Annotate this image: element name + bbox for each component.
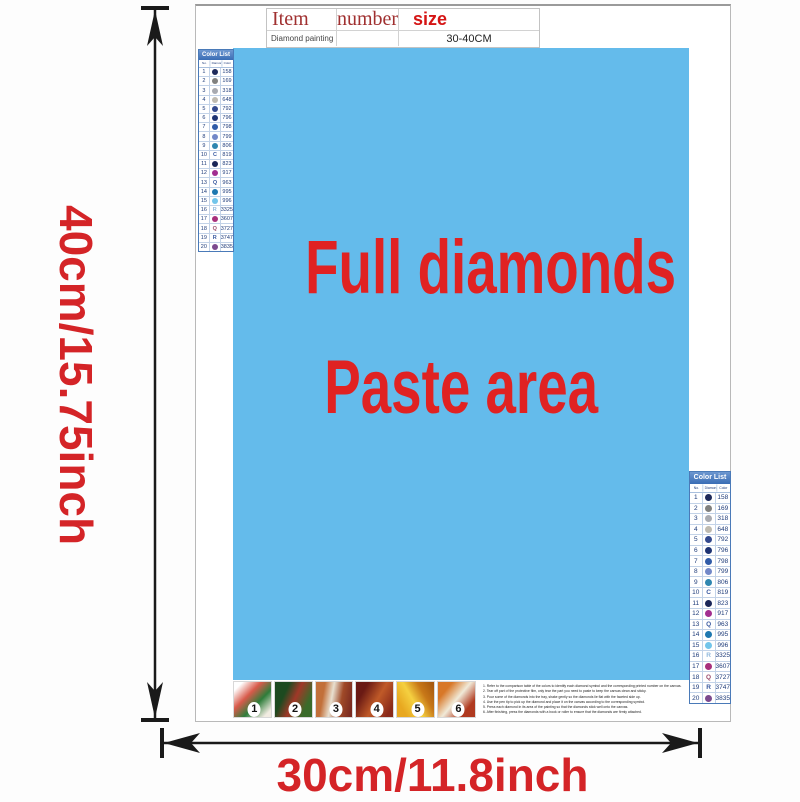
color-number: 5 (690, 535, 703, 545)
diamond-color-dot-icon (210, 123, 221, 131)
diamond-color-dot-icon (210, 68, 221, 76)
color-code: 798 (221, 124, 233, 130)
color-number: 8 (690, 567, 703, 577)
color-code: 318 (716, 515, 730, 522)
color-number: 17 (690, 662, 703, 672)
color-list-row: 7798 (690, 556, 730, 567)
color-list-row: 1158 (690, 493, 730, 504)
color-code: 3727 (716, 674, 730, 681)
color-number: 4 (690, 525, 703, 535)
color-number: 2 (199, 77, 210, 85)
diamond-color-dot-icon (703, 630, 716, 640)
diamond-color-dot-icon (703, 567, 716, 577)
color-list-row: 10C819 (199, 151, 233, 160)
color-list-row: 6796 (199, 114, 233, 123)
color-number: 7 (690, 556, 703, 566)
color-list-row: 9806 (199, 142, 233, 151)
color-dot (212, 189, 218, 195)
color-dot (705, 536, 712, 543)
color-list-row: 11823 (199, 160, 233, 169)
color-list-row: 16R3325 (690, 651, 730, 662)
color-code: 917 (716, 610, 730, 617)
color-number: 1 (199, 68, 210, 76)
color-number: 8 (199, 132, 210, 140)
diamond-color-dot-icon (703, 514, 716, 524)
color-dot (705, 695, 712, 702)
item-table: Item number size Diamond painting 30-40C… (266, 8, 540, 48)
color-code: 799 (221, 134, 233, 140)
color-list-row: 13Q963 (199, 178, 233, 187)
color-dot (705, 568, 712, 575)
diamond-color-dot-icon (210, 160, 221, 168)
color-list-row: 8799 (199, 132, 233, 141)
color-list-row: 14995 (199, 188, 233, 197)
color-dot (705, 515, 712, 522)
color-number: 2 (690, 504, 703, 514)
color-dot (212, 124, 218, 130)
item-table-value-number (337, 31, 399, 46)
color-code: 806 (221, 143, 233, 149)
color-dot (705, 526, 712, 533)
color-list-column-label: Color (223, 60, 233, 66)
color-list-column-label: No. (200, 60, 211, 66)
color-number: 13 (199, 178, 210, 186)
diamond-color-dot-icon (703, 693, 716, 703)
width-dimension-label: 30cm/11.8inch (155, 748, 710, 802)
step-thumbnail-2: 2 (274, 681, 313, 718)
diamond-color-dot-icon (703, 493, 716, 503)
color-code: 648 (716, 526, 730, 533)
color-list-row: 19R3747 (199, 234, 233, 243)
color-number: 19 (199, 234, 210, 242)
color-list-column-label: Diamond (211, 60, 222, 66)
color-number: 10 (690, 588, 703, 598)
color-dot (705, 642, 712, 649)
diamond-color-dot-icon (210, 243, 221, 251)
color-list-row: 203835 (690, 693, 730, 703)
color-dot (212, 161, 218, 167)
color-number: 15 (199, 197, 210, 205)
color-number: 7 (199, 123, 210, 131)
step-number-badge: 5 (411, 702, 424, 717)
color-dot (212, 143, 218, 149)
color-list-row: 10C819 (690, 588, 730, 599)
color-list-row: 11823 (690, 598, 730, 609)
item-table-header-number: number (337, 9, 399, 31)
step-thumbnail-4: 4 (355, 681, 394, 718)
color-list-row: 16R3325 (199, 206, 233, 215)
color-number: 6 (690, 546, 703, 556)
color-list-row: 2169 (199, 77, 233, 86)
step-number-badge: 3 (329, 702, 342, 717)
color-number: 14 (199, 188, 210, 196)
color-number: 18 (199, 224, 210, 232)
color-list-row: 5792 (690, 535, 730, 546)
diamond-color-dot-icon (210, 188, 221, 196)
diamond-color-dot-icon (210, 96, 221, 104)
step-thumbnail-1: 1 (233, 681, 272, 718)
item-table-value-item: Diamond painting (267, 31, 337, 46)
diamond-color-dot-icon (210, 132, 221, 140)
color-list-row: 4648 (199, 96, 233, 105)
color-code: 169 (716, 505, 730, 512)
color-list-left: Color ListNo.DiamondColor115821693318464… (198, 49, 234, 252)
color-code: 823 (221, 161, 233, 167)
color-number: 9 (690, 577, 703, 587)
paste-area-title-line1: Full diamonds (233, 224, 689, 311)
color-code: 917 (221, 170, 233, 176)
color-number: 4 (199, 96, 210, 104)
color-code: 3325 (716, 652, 730, 659)
color-code: 963 (221, 180, 233, 186)
color-number: 18 (690, 672, 703, 682)
color-list-row: 18Q3727 (690, 672, 730, 683)
color-number: 11 (690, 598, 703, 608)
paste-area: Full diamonds Paste area (233, 48, 689, 680)
diamond-symbol-letter: R (703, 651, 716, 661)
color-dot (212, 198, 218, 204)
diamond-color-dot-icon (703, 598, 716, 608)
diamond-symbol-letter: Q (210, 178, 221, 186)
color-number: 13 (690, 620, 703, 630)
color-code: 3325 (221, 207, 233, 213)
step-number-badge: 1 (248, 702, 261, 717)
diamond-color-dot-icon (210, 105, 221, 113)
color-number: 11 (199, 160, 210, 168)
color-code: 792 (716, 536, 730, 543)
color-code: 3607 (716, 663, 730, 670)
color-code: 3835 (716, 695, 730, 702)
color-list-row: 3318 (690, 514, 730, 525)
canvas-page: Item number size Diamond painting 30-40C… (195, 4, 731, 722)
color-list-row: 15996 (199, 197, 233, 206)
step-number-badge: 6 (452, 702, 465, 717)
step-thumbnails: 123456 (233, 681, 476, 718)
color-code: 798 (716, 558, 730, 565)
color-list-row: 1158 (199, 68, 233, 77)
color-dot (212, 170, 218, 176)
color-code: 819 (716, 589, 730, 596)
color-number: 1 (690, 493, 703, 503)
diamond-color-dot-icon (210, 114, 221, 122)
color-code: 792 (221, 106, 233, 112)
color-list-column-headers: No.DiamondColor (199, 60, 233, 68)
color-code: 796 (221, 115, 233, 121)
color-list-row: 14995 (690, 630, 730, 641)
color-list-column-label: Diamond (704, 484, 716, 491)
diamond-symbol-letter: Q (703, 620, 716, 630)
diamond-color-dot-icon (210, 77, 221, 85)
color-code: 158 (221, 69, 233, 75)
color-dot (705, 663, 712, 670)
color-list-row: 173607 (199, 215, 233, 224)
color-dot (705, 505, 712, 512)
color-dot (212, 134, 218, 140)
color-code: 3607 (221, 216, 233, 222)
color-number: 15 (690, 641, 703, 651)
paste-area-title-line2: Paste area (233, 344, 689, 431)
color-list-row: 13Q963 (690, 620, 730, 631)
color-code: 158 (716, 494, 730, 501)
step-thumbnail-3: 3 (315, 681, 354, 718)
instructions-text: 1. Refer to the comparison table of the … (483, 684, 685, 717)
color-list-row: 203835 (199, 243, 233, 251)
color-code: 648 (221, 97, 233, 103)
color-number: 16 (199, 206, 210, 214)
color-code: 996 (221, 198, 233, 204)
color-number: 9 (199, 142, 210, 150)
color-list-row: 4648 (690, 525, 730, 536)
color-list-row: 15996 (690, 641, 730, 652)
diamond-symbol-letter: Q (703, 672, 716, 682)
color-dot (705, 610, 712, 617)
color-dot (212, 244, 218, 250)
color-number: 12 (690, 609, 703, 619)
item-table-value-size: 30-40CM (399, 31, 539, 46)
color-number: 19 (690, 683, 703, 693)
diamond-color-dot-icon (703, 556, 716, 566)
diamond-color-dot-icon (210, 86, 221, 94)
color-number: 3 (690, 514, 703, 524)
color-list-row: 12917 (199, 169, 233, 178)
step-number-badge: 4 (370, 702, 383, 717)
color-dot (212, 115, 218, 121)
color-code: 3747 (716, 684, 730, 691)
diamond-color-dot-icon (210, 169, 221, 177)
diamond-color-dot-icon (210, 215, 221, 223)
color-dot (212, 88, 218, 94)
color-list-row: 7798 (199, 123, 233, 132)
color-list-row: 19R3747 (690, 683, 730, 694)
color-list-column-label: No. (691, 484, 703, 491)
color-list-row: 9806 (690, 577, 730, 588)
color-code: 819 (221, 152, 233, 158)
color-number: 20 (690, 693, 703, 703)
color-list-row: 5792 (199, 105, 233, 114)
color-list-row: 8799 (690, 567, 730, 578)
color-code: 995 (221, 189, 233, 195)
color-list-title: Color List (199, 50, 233, 60)
color-dot (212, 106, 218, 112)
item-table-header-item: Item (267, 9, 337, 31)
color-code: 806 (716, 579, 730, 586)
diamond-symbol-letter: C (703, 588, 716, 598)
diamond-symbol-letter: R (703, 683, 716, 693)
item-table-header-size: size (399, 9, 539, 31)
color-number: 20 (199, 243, 210, 251)
color-list-row: 18Q3727 (199, 224, 233, 233)
color-dot (705, 579, 712, 586)
diamond-color-dot-icon (703, 662, 716, 672)
diamond-color-dot-icon (210, 197, 221, 205)
diamond-color-dot-icon (703, 535, 716, 545)
color-code: 796 (716, 547, 730, 554)
color-number: 3 (199, 86, 210, 94)
step-thumbnail-5: 5 (396, 681, 435, 718)
color-list-title: Color List (690, 472, 730, 484)
height-dimension-arrow (139, 2, 171, 726)
height-dimension-label: 40cm/15.75inch (40, 168, 112, 582)
color-number: 14 (690, 630, 703, 640)
color-code: 318 (221, 88, 233, 94)
color-dot (705, 494, 712, 501)
color-dot (705, 558, 712, 565)
diamond-color-dot-icon (703, 641, 716, 651)
color-code: 823 (716, 600, 730, 607)
diamond-color-dot-icon (703, 504, 716, 514)
color-number: 16 (690, 651, 703, 661)
color-dot (212, 69, 218, 75)
color-number: 17 (199, 215, 210, 223)
color-code: 3727 (221, 226, 233, 232)
color-list-row: 2169 (690, 504, 730, 515)
diamond-color-dot-icon (703, 546, 716, 556)
color-dot (212, 97, 218, 103)
color-code: 3747 (221, 235, 233, 241)
diamond-color-dot-icon (703, 577, 716, 587)
color-list-row: 6796 (690, 546, 730, 557)
step-thumbnail-6: 6 (437, 681, 476, 718)
color-dot (705, 600, 712, 607)
diamond-symbol-letter: Q (210, 224, 221, 232)
diamond-symbol-letter: R (210, 206, 221, 214)
color-code: 995 (716, 631, 730, 638)
color-list-column-headers: No.DiamondColor (690, 484, 730, 493)
color-code: 996 (716, 642, 730, 649)
color-number: 6 (199, 114, 210, 122)
color-list-row: 173607 (690, 662, 730, 673)
color-number: 12 (199, 169, 210, 177)
color-list-column-label: Color (718, 484, 729, 491)
color-code: 799 (716, 568, 730, 575)
color-code: 169 (221, 78, 233, 84)
color-list-right: Color ListNo.DiamondColor115821693318464… (689, 471, 731, 704)
instruction-line: 6. After finishing, press the diamonds w… (483, 710, 685, 715)
color-code: 963 (716, 621, 730, 628)
color-list-row: 3318 (199, 86, 233, 95)
diamond-symbol-letter: C (210, 151, 221, 159)
color-dot (705, 547, 712, 554)
color-dot (212, 78, 218, 84)
diamond-symbol-letter: R (210, 234, 221, 242)
color-dot (705, 631, 712, 638)
diamond-color-dot-icon (703, 609, 716, 619)
diamond-color-dot-icon (703, 525, 716, 535)
color-number: 5 (199, 105, 210, 113)
diamond-color-dot-icon (210, 142, 221, 150)
color-dot (212, 216, 218, 222)
color-code: 3835 (221, 244, 233, 250)
step-number-badge: 2 (289, 702, 302, 717)
color-number: 10 (199, 151, 210, 159)
color-list-row: 12917 (690, 609, 730, 620)
